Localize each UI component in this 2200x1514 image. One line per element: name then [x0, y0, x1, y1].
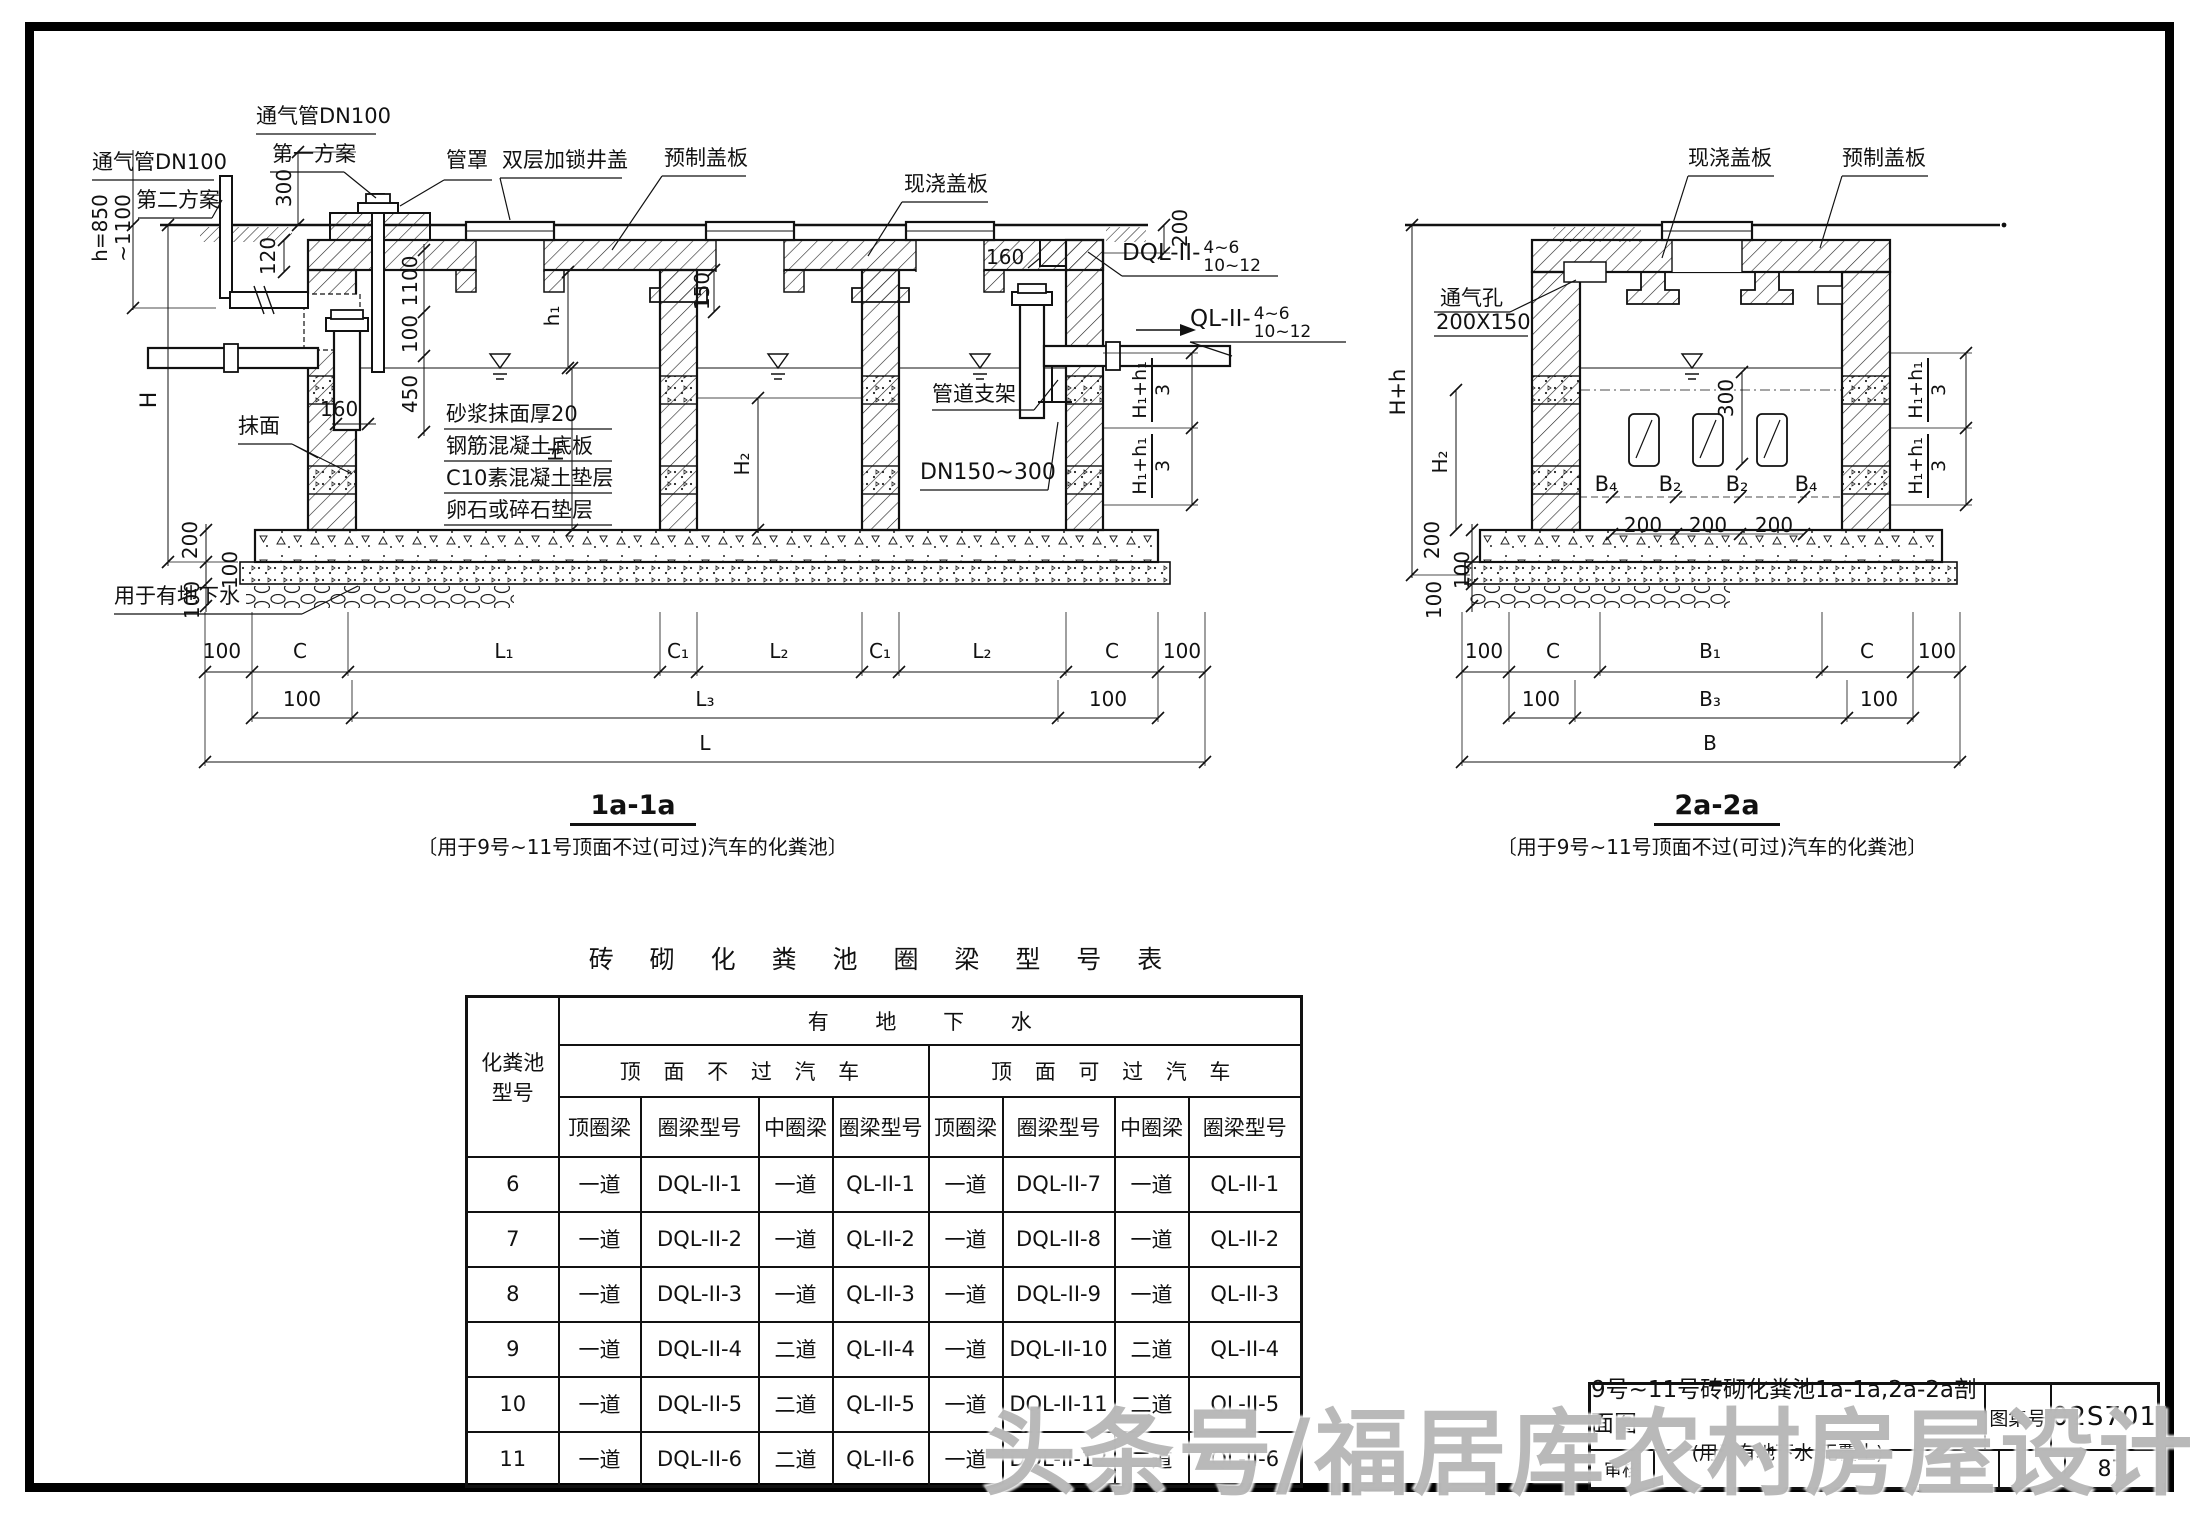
table-row: 8一道DQL-II-3一道QL-II-3一道DQL-II-9一道QL-II-3: [467, 1267, 1302, 1322]
cell: QL-II-4: [1189, 1322, 1302, 1377]
section2-title: 2a-2a: [1654, 790, 1780, 826]
dim-200-b: 200: [1678, 514, 1738, 537]
cell: DQL-II-1: [641, 1157, 759, 1212]
table-title: 砖 砌 化 粪 池 圈 梁 型 号 表: [465, 946, 1300, 975]
title-block: 9号~11号砖砌化粪池1a-1a,2a-2a剖面图 (用于有地下水 无覆土) 图…: [1588, 1382, 2160, 1490]
dim-100-peb-s1: 100: [180, 570, 204, 630]
chain3-L: L: [675, 732, 735, 755]
cell: 一道: [929, 1377, 1003, 1432]
beam-model-table: 化粪池 型号 有 地 下 水 顶 面 不 过 汽 车 顶 面 可 过 汽 车 顶…: [465, 995, 1303, 1488]
dql-range-bottom: 10~12: [1203, 258, 1261, 276]
cell: 二道: [759, 1322, 833, 1377]
chain-100-r2: 100: [1907, 640, 1967, 663]
chain-C1-a: C₁: [648, 640, 708, 663]
page-number: 87: [2066, 1451, 2157, 1487]
frac-H1h1-s2-lower: H₁+h₁ 3: [1906, 424, 1962, 508]
cell: QL-II-1: [1189, 1157, 1302, 1212]
section1-title: 1a-1a: [570, 790, 696, 826]
cell: 一道: [929, 1157, 1003, 1212]
dim-200-a: 200: [1613, 514, 1673, 537]
layer-note-1: 砂浆抹面厚20: [446, 402, 578, 426]
frac-num: H₁+h₁: [1130, 358, 1153, 421]
subheader: 圈梁型号: [1189, 1097, 1302, 1157]
pipe-support-label: 管道支架: [932, 382, 1016, 406]
chain2-B3: B₃: [1680, 688, 1740, 711]
chain2-100-r: 100: [1078, 688, 1138, 711]
cell: 二道: [759, 1432, 833, 1487]
cell: QL-II-1: [833, 1157, 929, 1212]
dim-H2-s1: H₂: [730, 434, 754, 494]
cast-slab-label-1: 现浇盖板: [904, 172, 988, 196]
cell: 9: [467, 1322, 559, 1377]
vent-hole-label: 通气孔: [1440, 286, 1503, 310]
frac-H1h1-s1-upper: H₁+h₁ 3: [1130, 348, 1186, 432]
chain-100-l2: 100: [1454, 640, 1514, 663]
chain-L2-a: L₂: [749, 640, 809, 663]
cell: 一道: [759, 1267, 833, 1322]
subheader: 顶圈梁: [559, 1097, 641, 1157]
cell: 一道: [929, 1212, 1003, 1267]
dim-h-range: h=850 ~1100: [88, 180, 136, 276]
double-lock-cover-label: 双层加锁井盖: [502, 148, 628, 172]
chain-C-l: C: [270, 640, 330, 663]
ql-beam-label: QL-II- 4~6 10~12: [1190, 306, 1311, 342]
dim-300: 300: [272, 158, 296, 218]
dim-1100: 1100: [398, 251, 422, 311]
frac-H1h1-s1-lower: H₁+h₁ 3: [1130, 424, 1186, 508]
plaster-label: 抹面: [238, 414, 280, 438]
titleblock-title: 9号~11号砖砌化粪池1a-1a,2a-2a剖面图 (用于有地下水 无覆土): [1591, 1385, 1986, 1449]
layer-note-3: C10素混凝土垫层: [446, 466, 613, 490]
chain2-100-l2: 100: [1511, 688, 1571, 711]
table-row: 9一道DQL-II-4二道QL-II-4一道DQL-II-10二道QL-II-4: [467, 1322, 1302, 1377]
table-header-row-1: 化粪池 型号 有 地 下 水: [467, 997, 1302, 1045]
frac-H1h1-s2-upper: H₁+h₁ 3: [1906, 348, 1962, 432]
frac-den: 3: [1929, 460, 1950, 472]
cell: DQL-II-10: [1003, 1322, 1115, 1377]
drawing-sheet: 通气管DN100 第二方案 通气管DN100 第一方案 管罩 双层加锁井盖 预制…: [0, 0, 2200, 1514]
precast-slab-label-1: 预制盖板: [664, 146, 748, 170]
dql-range: 4~6 10~12: [1203, 240, 1261, 276]
chain-C-r: C: [1082, 640, 1142, 663]
dim-h-range-1: h=850: [89, 194, 112, 262]
header-tank-model: 化粪池 型号: [467, 997, 559, 1157]
dim-160-inlet: 160: [320, 398, 358, 421]
atlas-label: 图集号: [1986, 1385, 2052, 1449]
cell: 8: [467, 1267, 559, 1322]
pipe-dn-label: DN150~300: [920, 460, 1056, 485]
dim-H2-s2: H₂: [1428, 432, 1452, 492]
table-row: 6一道DQL-II-1一道QL-II-1一道DQL-II-7一道QL-II-1: [467, 1157, 1302, 1212]
header-tank-model-l1: 化粪池: [468, 1047, 558, 1077]
vent-plan1-label-1: 通气管DN100: [256, 104, 391, 128]
titleblock-blank-2: [2000, 1451, 2066, 1487]
chain-C-r2: C: [1837, 640, 1897, 663]
layer-note-4: 卵石或碎石垫层: [446, 498, 593, 522]
cell: DQL-II-9: [1003, 1267, 1115, 1322]
precast-slab-label-2: 预制盖板: [1842, 146, 1926, 170]
cell: DQL-II-6: [641, 1432, 759, 1487]
table-row: 10一道DQL-II-5二道QL-II-5一道DQL-II-11二道QL-II-…: [467, 1377, 1302, 1432]
vent-plan2-label-2: 第二方案: [136, 188, 220, 212]
cell: 一道: [1115, 1157, 1189, 1212]
chain2-L3: L₃: [675, 688, 735, 711]
dim-100-inlet: 100: [398, 304, 422, 364]
table-header-row-2: 顶 面 不 过 汽 车 顶 面 可 过 汽 车: [467, 1045, 1302, 1097]
header-no-vehicle: 顶 面 不 过 汽 车: [559, 1045, 929, 1097]
dql-prefix: DQL-II-: [1122, 240, 1200, 266]
dim-100-bed-s1: 100: [218, 540, 242, 600]
cell: 二道: [1115, 1377, 1189, 1432]
cell: DQL-II-7: [1003, 1157, 1115, 1212]
ql-range: 4~6 10~12: [1254, 306, 1312, 342]
cell: 一道: [1115, 1267, 1189, 1322]
ql-range-bottom: 10~12: [1254, 324, 1312, 342]
cell: DQL-II-8: [1003, 1212, 1115, 1267]
dql-beam-label: DQL-II- 4~6 10~12: [1122, 240, 1261, 276]
cell: QL-II-3: [833, 1267, 929, 1322]
cell: QL-II-4: [833, 1322, 929, 1377]
cell: 二道: [1115, 1432, 1189, 1487]
atlas-number: 02S701: [2052, 1385, 2157, 1449]
subheader: 圈梁型号: [1003, 1097, 1115, 1157]
cell: DQL-II-3: [641, 1267, 759, 1322]
cell: 一道: [559, 1267, 641, 1322]
dim-150: 150: [690, 261, 714, 321]
label-B2-a: B₂: [1640, 472, 1700, 496]
cell: 一道: [759, 1212, 833, 1267]
cell: 一道: [559, 1322, 641, 1377]
chain-L2-b: L₂: [952, 640, 1012, 663]
cast-slab-label-2: 现浇盖板: [1688, 146, 1772, 170]
review-label: 审核: [1591, 1451, 1655, 1487]
cell: 7: [467, 1212, 559, 1267]
cell: QL-II-6: [833, 1432, 929, 1487]
dim-200-c: 200: [1744, 514, 1804, 537]
frac-num: H₁+h₁: [1906, 434, 1929, 497]
chain-C-l2: C: [1523, 640, 1583, 663]
header-vehicle-ok: 顶 面 可 过 汽 车: [929, 1045, 1302, 1097]
cell: 一道: [559, 1377, 641, 1432]
dim-450: 450: [398, 364, 422, 424]
cell: 二道: [1115, 1322, 1189, 1377]
subheader: 顶圈梁: [929, 1097, 1003, 1157]
cell: 10: [467, 1377, 559, 1432]
cell: DQL-II-5: [641, 1377, 759, 1432]
cell: 一道: [929, 1432, 1003, 1487]
table-header-row-3: 顶圈梁 圈梁型号 中圈梁 圈梁型号 顶圈梁 圈梁型号 中圈梁 圈梁型号: [467, 1097, 1302, 1157]
cell: QL-II-3: [1189, 1267, 1302, 1322]
dim-100-bed-s2: 100: [1450, 540, 1474, 600]
label-B4-b: B₄: [1776, 472, 1836, 496]
frac-den: 3: [1153, 460, 1174, 472]
vent-plan2-label-1: 通气管DN100: [92, 150, 227, 174]
chain3-B: B: [1680, 732, 1740, 755]
cell: QL-II-6: [1189, 1432, 1302, 1487]
frac-den: 3: [1153, 384, 1174, 396]
ql-prefix: QL-II-: [1190, 306, 1251, 332]
layer-note-2: 钢筋混凝土底板: [446, 434, 593, 458]
cell: 一道: [929, 1322, 1003, 1377]
frac-num: H₁+h₁: [1906, 358, 1929, 421]
chain2-100-l: 100: [272, 688, 332, 711]
cell: 二道: [759, 1377, 833, 1432]
subheader: 中圈梁: [759, 1097, 833, 1157]
cell: DQL-II-2: [641, 1212, 759, 1267]
ring-beam-symbols: [1629, 414, 1787, 466]
cell: 一道: [759, 1157, 833, 1212]
table-row: 7一道DQL-II-2一道QL-II-2一道DQL-II-8一道QL-II-2: [467, 1212, 1302, 1267]
chain-L1: L₁: [474, 640, 534, 663]
subheader: 圈梁型号: [833, 1097, 929, 1157]
header-groundwater: 有 地 下 水: [559, 997, 1302, 1045]
cell: 一道: [1115, 1212, 1189, 1267]
frac-num: H₁+h₁: [1130, 434, 1153, 497]
cell: QL-II-5: [833, 1377, 929, 1432]
manhole-covers: [466, 222, 994, 240]
cell: 11: [467, 1432, 559, 1487]
dim-120: 120: [256, 226, 280, 286]
chain-100-l: 100: [192, 640, 252, 663]
dim-H: H: [138, 370, 162, 430]
cell: 一道: [559, 1212, 641, 1267]
table-row: 11一道DQL-II-6二道QL-II-6一道DQL-II-12二道QL-II-…: [467, 1432, 1302, 1487]
titleblock-blank-1: [1655, 1451, 2000, 1487]
titleblock-title-l1: 9号~11号砖砌化粪池1a-1a,2a-2a剖面图: [1591, 1370, 1984, 1438]
dim-200-slab-s2: 200: [1420, 510, 1444, 570]
cell: DQL-II-11: [1003, 1377, 1115, 1432]
cell: DQL-II-4: [641, 1322, 759, 1377]
cell: QL-II-2: [833, 1212, 929, 1267]
cell: 6: [467, 1157, 559, 1212]
dim-200-slab-s1: 200: [178, 510, 202, 570]
dim-100-peb-s2: 100: [1422, 570, 1446, 630]
cell: 一道: [929, 1267, 1003, 1322]
dim-h-range-2: ~1100: [112, 194, 135, 262]
dim-300-s2: 300: [1714, 368, 1738, 428]
dim-h1: h₁: [540, 286, 564, 346]
cell: 一道: [559, 1432, 641, 1487]
dim-Hh: H+h: [1386, 362, 1410, 422]
frac-den: 3: [1929, 384, 1950, 396]
chain-100-r: 100: [1152, 640, 1212, 663]
pipe-cap-label: 管罩: [446, 148, 488, 172]
water-level-symbols: [490, 354, 990, 379]
cell: QL-II-2: [1189, 1212, 1302, 1267]
section1-caption: 〔用于9号~11号顶面不过(可过)汽车的化粪池〕: [350, 836, 915, 859]
cell: 一道: [559, 1157, 641, 1212]
chain2-100-r2: 100: [1849, 688, 1909, 711]
cell: DQL-II-12: [1003, 1432, 1115, 1487]
section2-caption: 〔用于9号~11号顶面不过(可过)汽车的化粪池〕: [1472, 836, 1952, 859]
header-tank-model-l2: 型号: [468, 1077, 558, 1107]
vent-hole-size: 200X150: [1436, 310, 1531, 334]
subheader: 中圈梁: [1115, 1097, 1189, 1157]
dim-160-ledge: 160: [986, 246, 1024, 269]
chain-C1-b: C₁: [850, 640, 910, 663]
subheader: 圈梁型号: [641, 1097, 759, 1157]
label-B2-b: B₂: [1707, 472, 1767, 496]
label-B4-a: B₄: [1576, 472, 1636, 496]
chain-B1: B₁: [1680, 640, 1740, 663]
cell: QL-II-5: [1189, 1377, 1302, 1432]
